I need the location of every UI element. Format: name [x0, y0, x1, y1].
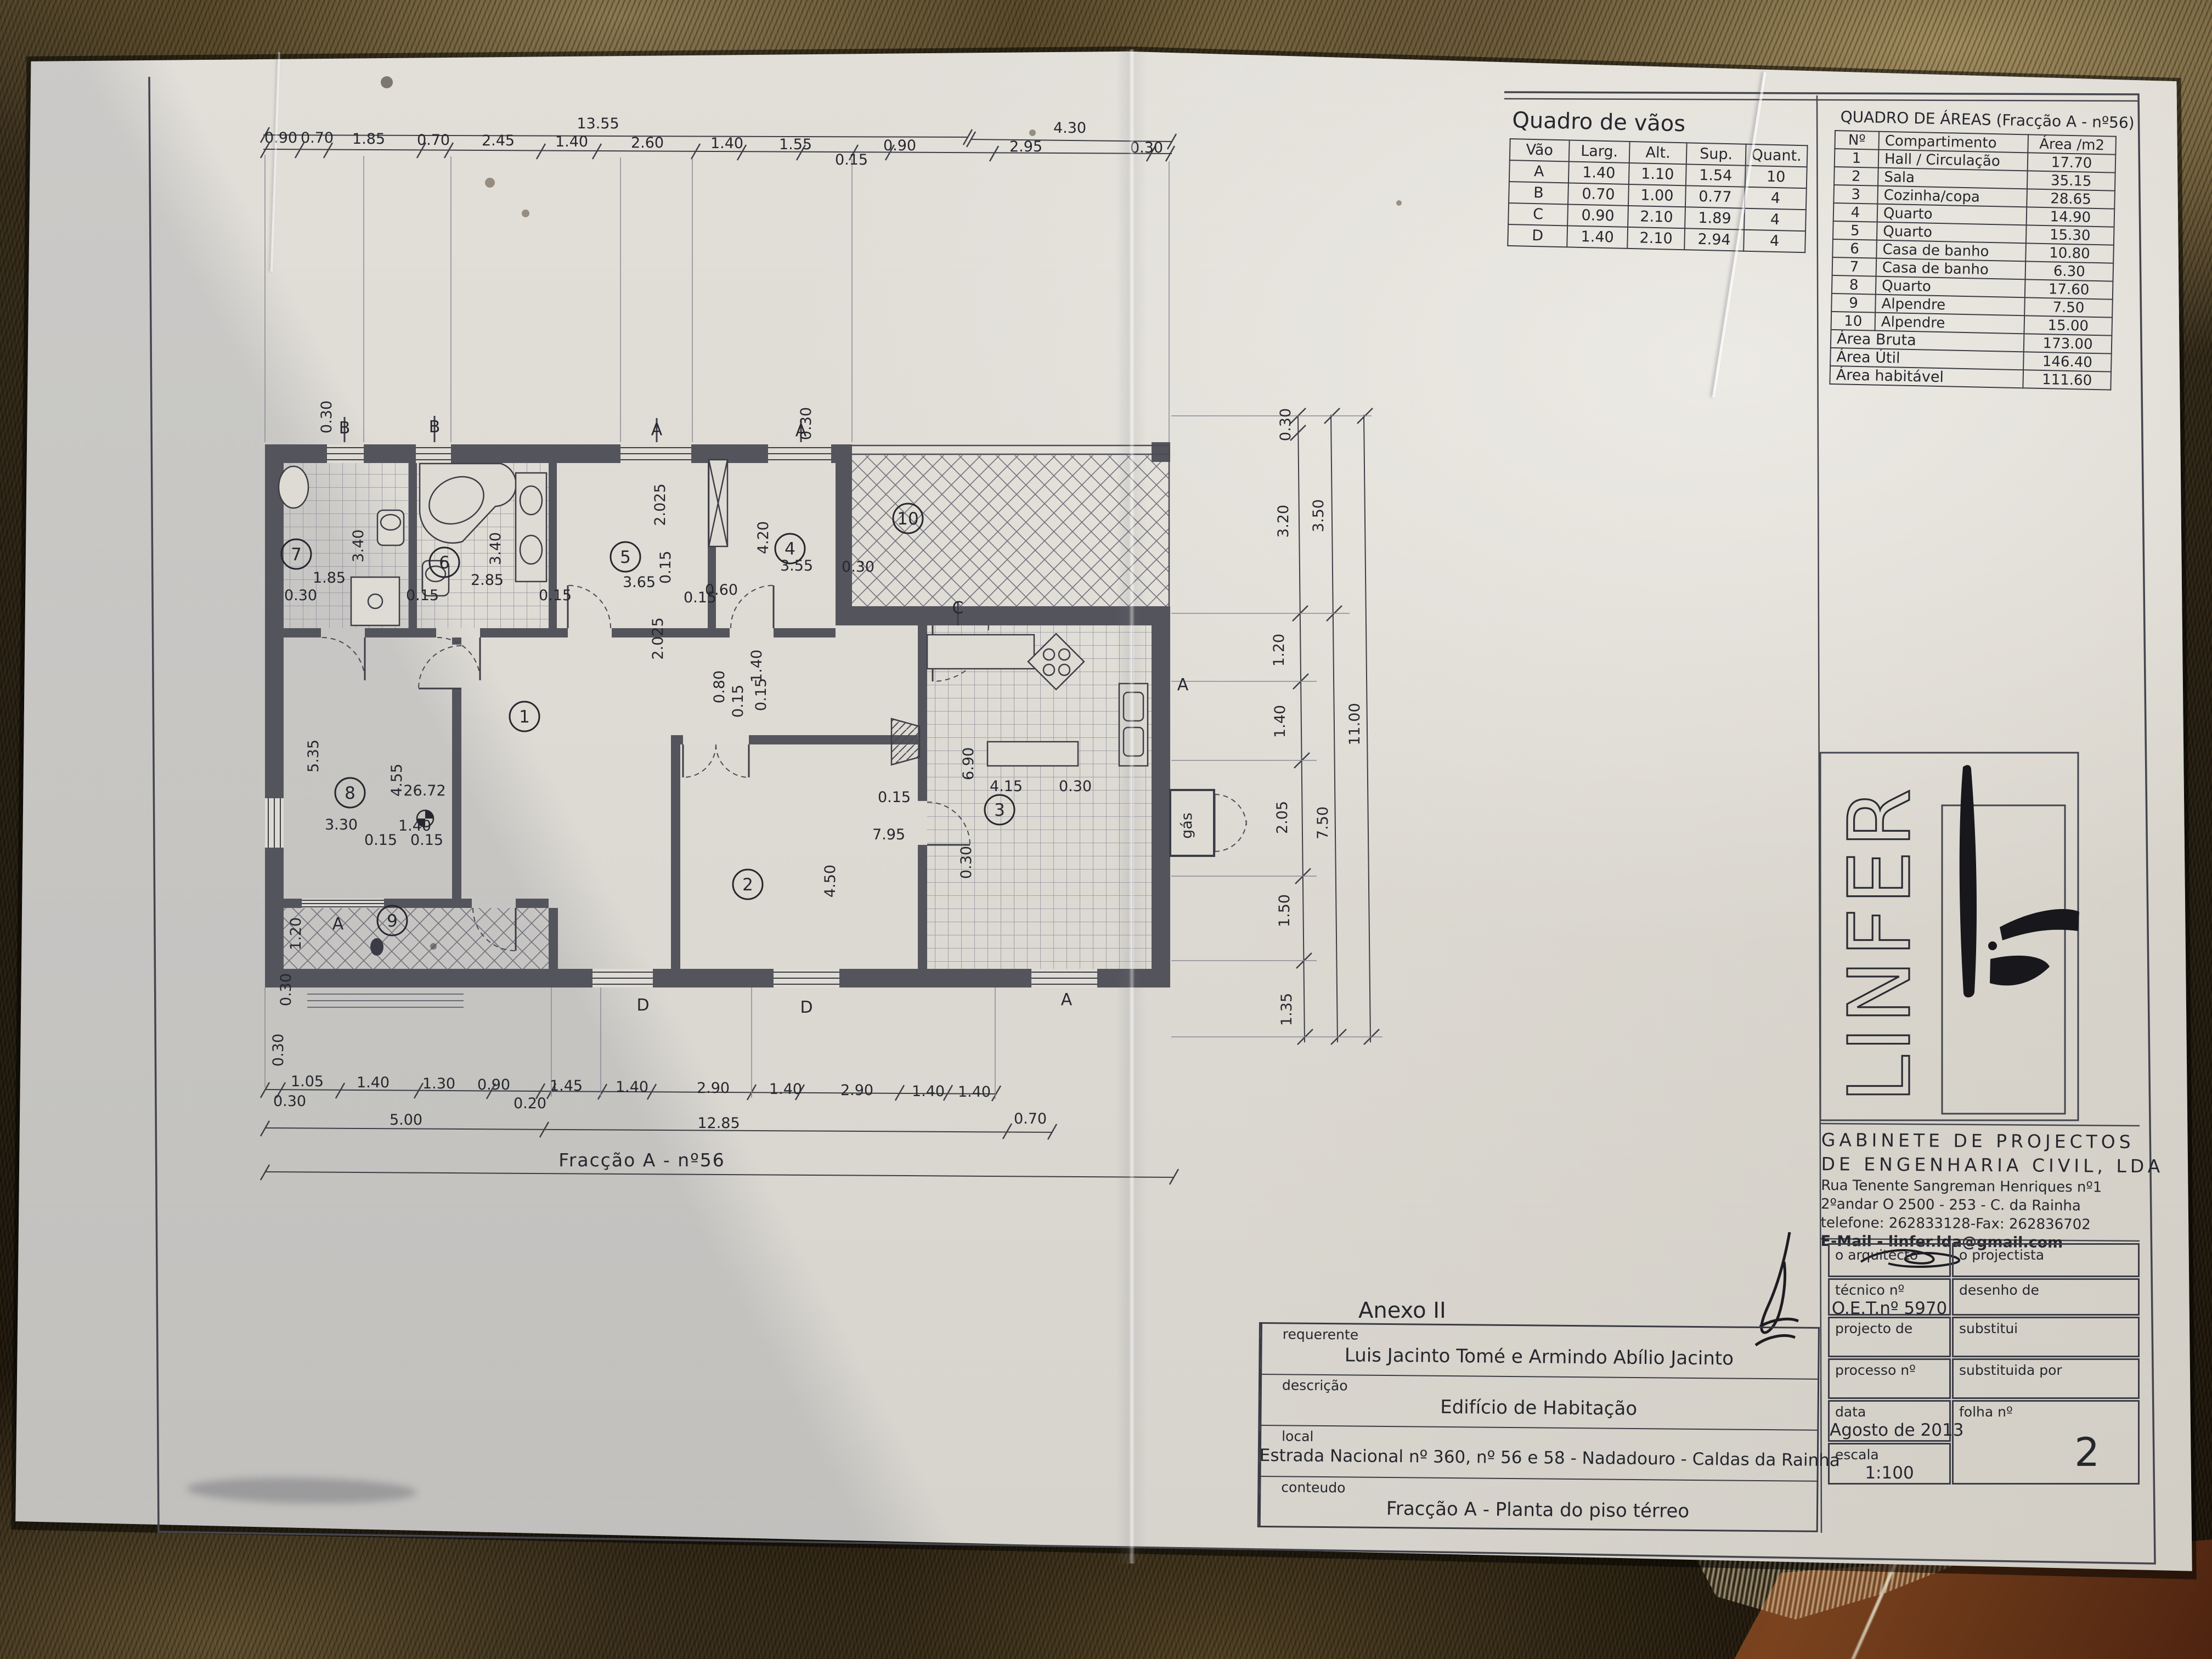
areas-cell: 8 — [1832, 275, 1876, 295]
cell-data: data Agosto de 2013 — [1828, 1400, 1951, 1442]
dimension-label: 1.05 — [291, 1073, 324, 1090]
dimension-label: 1.40 — [555, 133, 588, 150]
vaos-cell: 1.40 — [1568, 161, 1629, 184]
dimension-label: 13.55 — [577, 115, 619, 132]
dimension-label: 1.35 — [1278, 993, 1295, 1026]
vaos-cell: 1.40 — [1567, 225, 1628, 248]
room-label-2: 2 — [733, 870, 763, 899]
room-number: 1 — [519, 707, 530, 727]
room-label-8: 8 — [335, 778, 365, 808]
cell-folha: folha nº 2 — [1952, 1400, 2140, 1485]
bath6-counter — [516, 473, 546, 582]
dimension-label: 0.90 — [883, 137, 916, 154]
dimension-label: 1.85 — [352, 131, 385, 148]
cell-projecto: projecto de — [1828, 1317, 1951, 1357]
dimension-label: 26.72 — [403, 782, 445, 799]
bath7-toilet — [377, 510, 404, 545]
field-value: Luis Jacinto Tomé e Armindo Abílio Jacin… — [1260, 1344, 1818, 1370]
company-block: GABINETE DE PROJECTOS DE ENGENHARIA CIVI… — [1820, 1128, 2151, 1253]
vaos-cell: A — [1509, 160, 1569, 183]
vaos-cell: 0.90 — [1567, 204, 1628, 227]
floor-plan: 13.554.300.900.701.850.702.451.402.601.4… — [261, 115, 1383, 1184]
areas-cell: 6 — [1832, 239, 1877, 258]
field-label: requerente — [1283, 1326, 1359, 1342]
dimension-label: 0.30 — [1059, 778, 1092, 795]
room-number: 5 — [620, 548, 631, 567]
company-phone-line: telefone: 262833128-Fax: 262836702 — [1821, 1214, 2150, 1234]
dimension-label: 7.50 — [1314, 806, 1331, 839]
doc-field-local: local Estrada Nacional nº 360, nº 56 e 5… — [1260, 1426, 1818, 1482]
dimension-label: 0.20 — [513, 1095, 546, 1112]
room-label-1: 1 — [510, 702, 539, 731]
dimension-label: 2.025 — [650, 617, 667, 659]
dimension-label: 0.30 — [1277, 408, 1294, 441]
cell-label: escala — [1835, 1447, 1879, 1463]
dimension-lines — [261, 127, 1379, 1184]
dimension-label: 2.45 — [482, 132, 515, 149]
vaos-cell: 4 — [1744, 208, 1806, 232]
dimension-label: 0.15 — [730, 685, 747, 718]
dimension-label: 1.40 — [1272, 705, 1289, 738]
areas-cell: 17.60 — [2025, 279, 2113, 299]
cell-label: data — [1835, 1404, 1866, 1420]
dimension-label: 4.30 — [1053, 120, 1086, 137]
cell-substituida: substituida por — [1952, 1358, 2140, 1399]
field-label: descrição — [1282, 1377, 1348, 1393]
bath7-sink — [279, 466, 308, 508]
company-name-line: GABINETE DE PROJECTOS — [1821, 1128, 2151, 1154]
cell-arquitecto: o arquitecto — [1828, 1243, 1951, 1277]
areas-cell: 9 — [1831, 294, 1876, 313]
room-number: 7 — [291, 545, 302, 565]
areas-cell: 7 — [1832, 257, 1877, 276]
linfer-logo: LINFER — [1820, 753, 2079, 1120]
dimension-label: 1.40 — [912, 1083, 945, 1100]
areas-cell: 2 — [1834, 167, 1878, 186]
linfer-wordmark: LINFER — [1830, 785, 1929, 1103]
dimension-label: 11.00 — [1346, 703, 1363, 745]
cell-value: O.E.T.nº 5970 — [1830, 1299, 1949, 1318]
vaos-cell: B — [1509, 182, 1568, 204]
dimension-label: 0.15 — [753, 678, 770, 711]
dimension-label: 0.70 — [301, 129, 334, 146]
dimension-label: 1.40 — [616, 1079, 648, 1096]
dimension-label: 1.50 — [1276, 894, 1293, 927]
cell-label: substituida por — [1959, 1362, 2062, 1378]
dimension-label: 0.15 — [410, 832, 443, 849]
cell-label: o arquitecto — [1835, 1247, 1918, 1263]
dimension-label: 0.15 — [835, 151, 868, 168]
dimension-label: 3.65 — [623, 574, 656, 591]
bath7-shower — [351, 577, 399, 625]
areas-cell: 10 — [1831, 312, 1876, 331]
areas-cell: 28.65 — [2027, 189, 2115, 208]
room-number: 8 — [345, 783, 356, 803]
areas-cell: 14.90 — [2027, 207, 2115, 227]
dimension-label: 0.30 — [273, 1093, 306, 1110]
dimension-label: 6.90 — [960, 747, 977, 780]
dimension-label: 0.15 — [878, 789, 911, 806]
room-number: 3 — [994, 800, 1005, 820]
vaos-header: Larg. — [1569, 140, 1630, 162]
cell-label: o projectista — [1959, 1247, 2044, 1263]
dimension-label: 2.95 — [1009, 138, 1042, 155]
room-number: 2 — [742, 875, 753, 895]
dimension-label: 0.30 — [318, 400, 335, 433]
section-letter: D — [636, 996, 649, 1015]
vaos-header: Sup. — [1686, 143, 1746, 165]
cell-label: processo nº — [1835, 1362, 1916, 1378]
vaos-cell: 1.00 — [1628, 184, 1686, 207]
vaos-cell: 2.10 — [1627, 227, 1685, 250]
dimension-label: 0.70 — [417, 132, 450, 149]
gas-label: gás — [1178, 812, 1195, 839]
areas-cell: 5 — [1833, 221, 1877, 240]
kitchen-counter — [927, 635, 1034, 669]
cell-tecnico: técnico nº O.E.T.nº 5970 — [1828, 1278, 1951, 1316]
porch9-hatch — [284, 908, 549, 969]
areas-cell: 15.30 — [2026, 225, 2114, 245]
logo-brush-glyph — [1960, 765, 2079, 998]
dimension-label: 0.30 — [278, 973, 295, 1006]
dimension-label: 2.60 — [631, 134, 664, 151]
vaos-cell: D — [1508, 224, 1567, 247]
dimension-label: 1.30 — [422, 1075, 455, 1092]
vaos-cell: 1.54 — [1686, 164, 1746, 187]
dimension-label: 1.40 — [958, 1084, 991, 1101]
room-label-5: 5 — [611, 542, 640, 572]
vaos-cell: 0.70 — [1568, 183, 1629, 205]
cell-label: técnico nº — [1835, 1282, 1904, 1298]
dimension-label: 0.90 — [264, 129, 297, 146]
photographed-floor-plan-sheet: 13.554.300.900.701.850.702.451.402.601.4… — [0, 0, 2212, 1659]
vaos-cell: 1.10 — [1629, 163, 1686, 185]
cell-projectista: o projectista — [1952, 1243, 2140, 1277]
section-letter: A — [1177, 675, 1189, 695]
vaos-cell: C — [1508, 203, 1568, 225]
areas-cell: 15.00 — [2024, 315, 2112, 335]
vaos-header: Vão — [1510, 139, 1570, 161]
dimension-label: 1.20 — [1271, 634, 1288, 667]
areas-table-block: QUADRO DE ÁREAS (Fracção A - nº56) Nº Co… — [1829, 108, 2135, 391]
dimension-label: 1.85 — [313, 569, 346, 586]
room-number: 4 — [785, 539, 795, 559]
dimension-label: 0.15 — [657, 551, 674, 584]
section-letter: A — [795, 421, 807, 441]
vaos-cell: 4 — [1745, 187, 1807, 210]
vaos-cell: 0.77 — [1685, 185, 1745, 208]
dimension-label: 2.90 — [697, 1080, 730, 1097]
field-label: conteudo — [1281, 1479, 1345, 1496]
cell-desenho: desenho de — [1952, 1278, 2140, 1316]
dimension-label: 2.90 — [840, 1082, 873, 1099]
room-number: 9 — [387, 911, 398, 931]
paper-fold-line — [1116, 49, 1147, 1564]
dimension-label: 2.85 — [471, 572, 504, 589]
cell-label: projecto de — [1835, 1321, 1912, 1336]
vaos-cell: 2.10 — [1628, 206, 1685, 228]
dimension-label: 1.55 — [779, 136, 812, 153]
dimension-label: 5.35 — [305, 740, 322, 772]
vaos-header: Alt. — [1629, 142, 1687, 164]
cell-processo: processo nº — [1828, 1358, 1951, 1399]
section-letter: D — [800, 998, 812, 1017]
doc-fields-block: requerente Luis Jacinto Tomé e Armindo A… — [1257, 1322, 1820, 1532]
areas-cell: 35.15 — [2027, 171, 2115, 190]
section-letter: A — [651, 420, 663, 439]
areas-summary-value: 173.00 — [2024, 334, 2112, 353]
dimension-label: 1.40 — [357, 1074, 390, 1091]
section-letter: A — [332, 915, 344, 934]
dimension-label: 4.20 — [755, 521, 772, 554]
field-value: Edifício de Habitação — [1260, 1395, 1817, 1421]
field-value: Estrada Nacional nº 360, nº 56 e 58 - Na… — [1260, 1446, 1817, 1470]
dimension-label: 4.15 — [990, 778, 1023, 795]
areas-cell: 1 — [1835, 149, 1879, 168]
vaos-table: Vão Larg. Alt. Sup. Quant. A 1.40 1.10 1… — [1507, 138, 1808, 253]
cell-label: desenho de — [1959, 1282, 2039, 1298]
company-address-line: 2ºandar O 2500 - 253 - C. da Rainha — [1821, 1195, 2150, 1216]
doc-field-descricao: descrição Edifício de Habitação — [1260, 1375, 1818, 1431]
areas-cell: 17.70 — [2028, 153, 2116, 172]
areas-header: Área /m2 — [2028, 134, 2116, 154]
areas-table: Nº Compartimento Área /m2 1Hall / Circul… — [1829, 130, 2117, 391]
company-name-line: DE ENGENHARIA CIVIL, LDA — [1821, 1152, 2150, 1178]
areas-cell: 6.30 — [2025, 261, 2114, 281]
dimension-label: 4.50 — [822, 865, 839, 898]
cell-value: 1:100 — [1830, 1463, 1949, 1483]
field-label: local — [1282, 1428, 1314, 1444]
dimension-label: 7.95 — [872, 826, 905, 843]
dimension-label: 2.025 — [652, 483, 669, 526]
cell-label: folha nº — [1959, 1404, 2013, 1420]
dimension-label: 3.20 — [1275, 505, 1292, 538]
anexo-label: Anexo II — [1358, 1298, 1446, 1323]
areas-cell: 4 — [1833, 203, 1878, 222]
dimension-label: 0.15 — [684, 589, 716, 606]
dimension-label: 2.05 — [1274, 801, 1291, 834]
areas-cell: 10.80 — [2025, 243, 2114, 263]
dimension-label: 0.30 — [958, 846, 975, 879]
dimension-label: 1.40 — [769, 1081, 802, 1098]
dimension-label: 0.30 — [842, 558, 874, 575]
areas-header: Nº — [1835, 131, 1879, 150]
kitchen-island — [988, 742, 1078, 766]
dimension-label: 1.45 — [550, 1077, 583, 1094]
dimension-label: 3.40 — [487, 532, 504, 565]
areas-cell: 3 — [1833, 185, 1878, 204]
cell-escala: escala 1:100 — [1828, 1443, 1951, 1485]
dimension-label: 0.90 — [477, 1076, 510, 1093]
doc-field-conteudo: conteudo Fracção A - Planta do piso térr… — [1259, 1477, 1817, 1532]
dimension-label: 3.50 — [1310, 499, 1327, 532]
dimension-label: 3.40 — [350, 529, 367, 562]
vaos-table-block: Quadro de vãos Vão Larg. Alt. Sup. Quant… — [1507, 108, 1809, 253]
porch9-steps — [307, 994, 464, 1007]
cell-value: Agosto de 2013 — [1830, 1420, 1949, 1440]
doc-field-requerente: requerente Luis Jacinto Tomé e Armindo A… — [1260, 1324, 1818, 1380]
room-number: 6 — [439, 553, 450, 573]
dimension-label: 3.55 — [780, 557, 813, 574]
porch-column — [370, 938, 383, 956]
dimension-label: 0.80 — [711, 670, 728, 703]
cell-substitui: substitui — [1952, 1317, 2140, 1357]
vaos-cell: 2.94 — [1684, 228, 1744, 251]
dimension-label: 0.30 — [284, 587, 317, 604]
areas-summary-label: Área habitável — [1830, 366, 2023, 388]
dimension-label: 0.30 — [270, 1034, 287, 1066]
dimension-label: 1.40 — [710, 135, 743, 152]
plan-caption: Fracção A - nº56 — [558, 1149, 725, 1171]
room-label-4: 4 — [775, 534, 805, 563]
section-letter: C — [952, 599, 964, 618]
vaos-cell: 1.89 — [1685, 207, 1745, 229]
fireplace — [891, 719, 919, 765]
dimension-label: 1.40 — [748, 650, 765, 682]
dimension-label: 0.15 — [539, 587, 572, 604]
vaos-header: Quant. — [1746, 144, 1808, 167]
section-letter: B — [429, 417, 441, 437]
dimension-label: 4.55 — [388, 764, 405, 797]
field-value: Fracção A - Planta do piso térreo — [1259, 1497, 1816, 1523]
sheet-number: 2 — [2074, 1429, 2100, 1475]
areas-cell: 7.50 — [2024, 297, 2113, 317]
areas-summary-value: 146.40 — [2023, 352, 2112, 371]
dimension-label: 5.00 — [390, 1111, 422, 1128]
company-address-line: Rua Tenente Sangreman Henriques nº1 — [1821, 1176, 2150, 1197]
dimension-label: 0.70 — [1014, 1110, 1047, 1127]
section-letter: A — [1061, 990, 1073, 1009]
cell-label: substitui — [1959, 1321, 2018, 1336]
dimension-label: 1.20 — [287, 917, 304, 950]
room-number: 10 — [897, 509, 918, 529]
vaos-cell: 10 — [1745, 166, 1807, 189]
dimension-label: 12.85 — [697, 1115, 740, 1132]
dimension-label: 0.15 — [364, 832, 397, 849]
dimension-label: 3.30 — [325, 816, 358, 833]
section-letter: B — [339, 419, 351, 438]
areas-summary-value: 111.60 — [2023, 370, 2111, 390]
vaos-cell: 4 — [1743, 230, 1805, 253]
dimension-label: 0.15 — [406, 587, 439, 604]
